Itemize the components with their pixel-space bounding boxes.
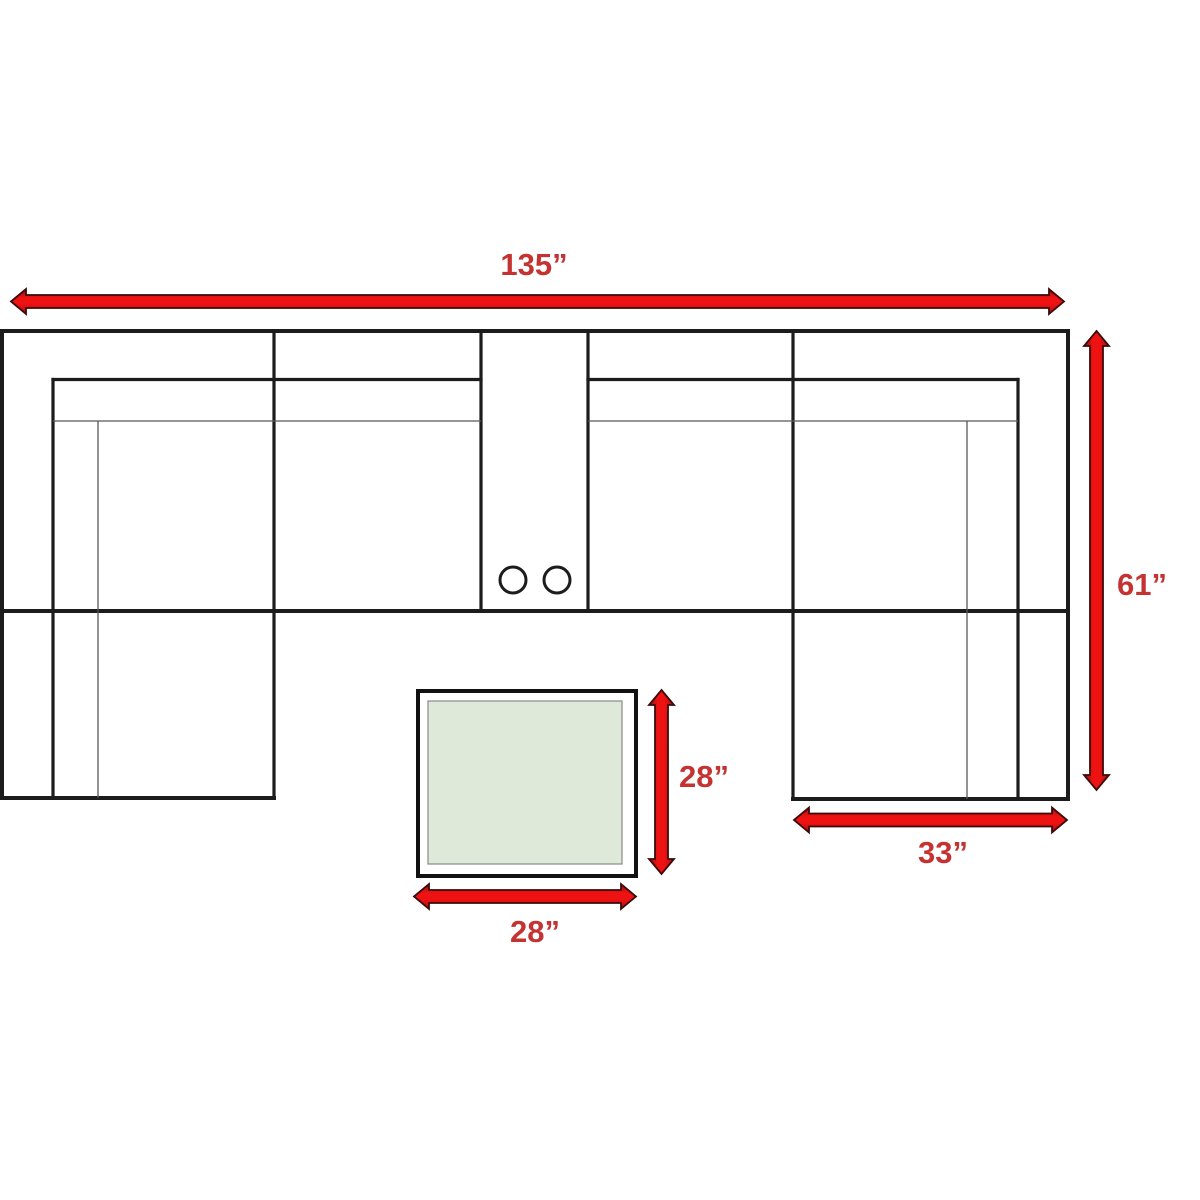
svg-text:28”: 28”	[510, 914, 560, 949]
svg-text:61”: 61”	[1117, 567, 1167, 602]
svg-text:135”: 135”	[500, 247, 567, 282]
svg-text:28”: 28”	[679, 759, 729, 794]
svg-text:33”: 33”	[918, 835, 968, 870]
